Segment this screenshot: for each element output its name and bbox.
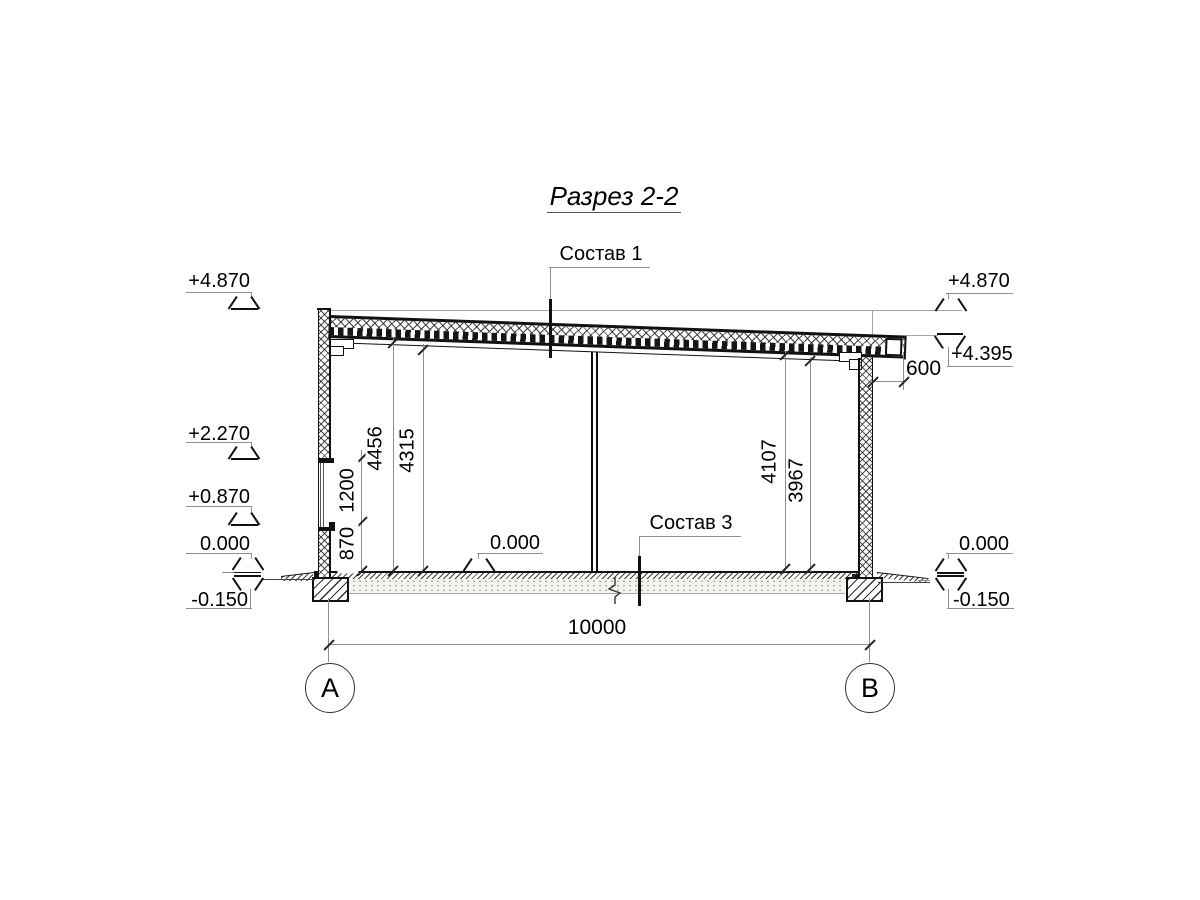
elev-left-parapet-underline [186,292,252,293]
elev-left-head-arrow-icon [236,447,252,459]
axis-b-line [869,598,870,662]
floor-composition-leader-thick [638,556,641,606]
roof-composition-label: Состав 1 [551,243,651,266]
elev-left-parapet-arrow-icon [236,297,252,309]
ref-line-wall-b-up [872,311,873,335]
foundation-b [846,577,883,602]
dim-opening-height: 1200 [338,461,359,521]
wall-a-hatch-lower [319,531,330,578]
floor-base-stipple [345,579,845,594]
elev-left-sill-bar [231,524,258,526]
wall-a-hatch-upper [319,310,330,458]
dim-left-height-to-deck: 4456 [366,419,387,479]
floor-composition-label: Состав 3 [641,512,741,535]
window-glazing-line-2 [323,463,324,528]
elev-right-floor: 0.000 [959,534,1023,555]
axis-a-letter: A [321,673,339,704]
ground-line-left [262,579,314,580]
elev-right-ground-arrow-icon [943,577,959,589]
dim-span-line [329,644,871,645]
floor-break-mark [607,577,623,604]
elev-right-roof-low: +4.395 [951,344,1021,365]
dim-right-clear-height: 3967 [787,451,808,511]
foundation-a [312,577,349,602]
dim-line-right-clear [810,357,811,573]
elev-left-parapet-top: +4.870 [186,271,250,292]
window-glazing-line-1 [320,463,321,528]
roof-edge-beam-box [885,338,903,357]
elev-right-floor-underline [946,553,1013,554]
dim-line-opening [361,450,362,572]
axis-b-letter: B [861,673,879,704]
elev-mid-floor-arrow-icon [471,559,487,571]
elev-right-low-riser [948,347,949,367]
elev-left-opening-sill: +0.870 [186,487,250,508]
dim-left-clear-height: 4315 [398,421,419,481]
elev-right-low-underline [947,366,1013,367]
dim-sill-height: 870 [338,514,359,574]
axis-a-line [328,598,329,662]
center-post-line-2 [596,352,598,572]
roof-composition-underline [549,267,650,268]
elev-left-datum-bar-upper [234,572,261,574]
roof-composition-leader-thin [550,267,551,301]
dim-roof-overhang: 600 [906,357,941,381]
dim-overhang-ext-line [903,352,904,390]
roof-composition-leader-thick [549,299,552,358]
ref-line-top-level [330,310,962,311]
elev-left-floor-underline [186,553,252,554]
axis-bubble-a: A [305,663,355,713]
elev-left-ground-arrow-icon [240,577,256,589]
elev-right-datum-bar-upper [937,572,964,574]
corbel-left-lower [330,346,344,357]
elev-right-ground-underline [947,608,1014,609]
dim-line-left-deck [393,337,394,572]
dim-right-height-to-deck: 4107 [760,432,781,492]
center-post-line-1 [591,352,593,572]
title-underline [547,212,681,213]
elev-left-parapet-bar [231,308,258,310]
dim-line-left-clear [423,344,424,572]
wall-a-inner-face-upper [329,310,331,458]
ground-dash-right [918,580,930,581]
floor-screed-hatch [330,573,858,579]
axis-bubble-b: B [845,663,895,713]
elev-right-high-arrow-icon [943,299,959,311]
elev-left-floor-arrow-icon [240,558,256,570]
wall-b-inner-face [858,358,860,579]
drawing-title: Разрез 2-2 [544,181,684,212]
ground-line-right [878,582,930,583]
elev-right-high-underline [946,293,1013,294]
floor-composition-underline [639,536,741,537]
elev-left-head-bar [231,458,258,460]
drawing-sheet: Разрез 2-2 [0,0,1200,900]
elev-mid-floor-underline [477,553,543,554]
dim-span: 10000 [564,616,630,640]
elev-left-head-underline [186,442,252,443]
elev-left-sill-arrow-icon [236,513,252,525]
elev-left-floor: 0.000 [186,534,250,555]
elev-left-ground-riser [250,589,251,609]
elev-right-floor-arrow-icon [943,559,959,571]
elev-right-ground-riser [948,589,949,608]
elev-left-sill-underline [186,506,252,507]
wall-b-outer-face [872,356,874,578]
elev-right-roof-high: +4.870 [948,271,1018,292]
elev-left-ground-underline [186,608,252,609]
elev-mid-floor: 0.000 [483,533,547,554]
wall-b-hatch [860,357,872,578]
